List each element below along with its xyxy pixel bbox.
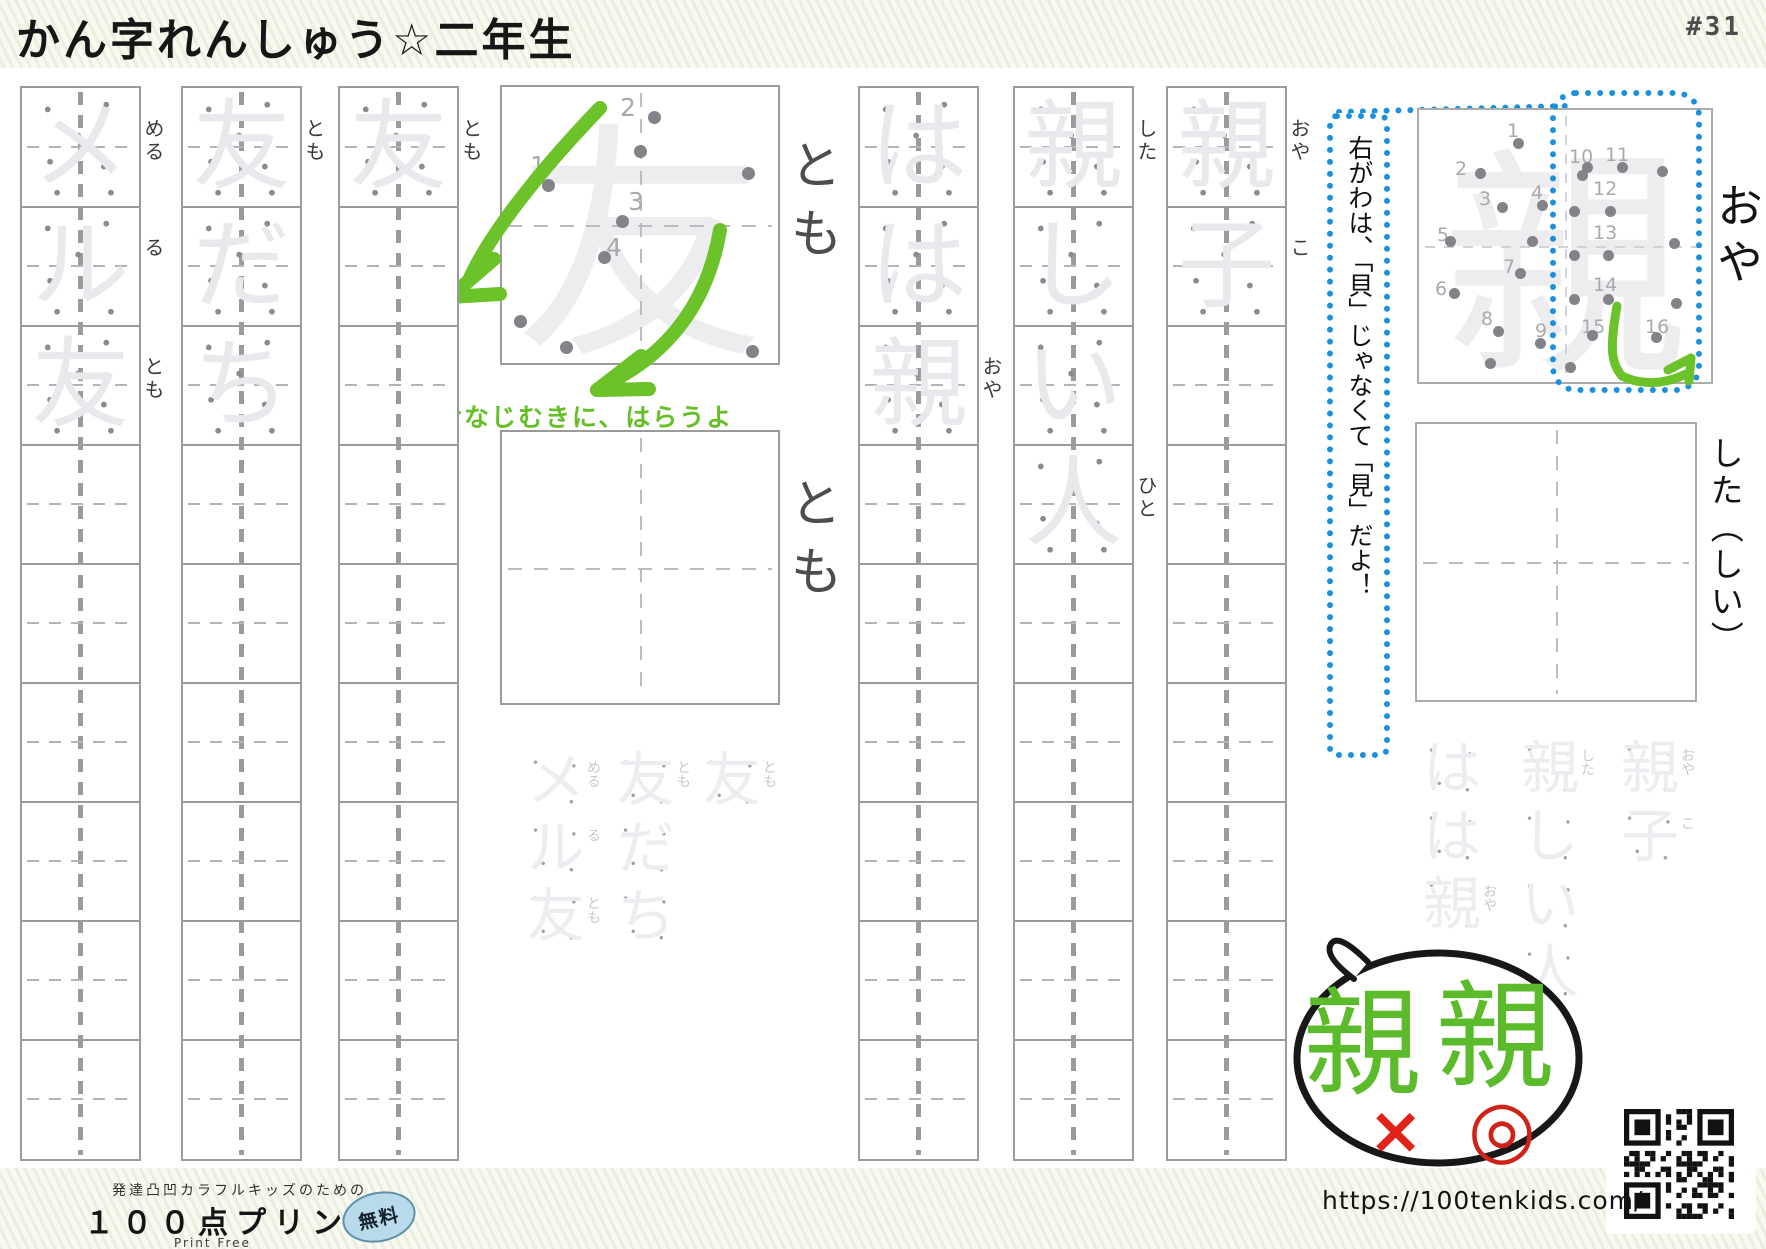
worksheet-page: #31 かん字れんしゅう☆二年生 友 1234 おなじむきに、はらうよ とも と… (0, 0, 1766, 1249)
website-url: https://100tenkids.com/ (1322, 1186, 1643, 1215)
wrong-mark: × (1368, 1098, 1423, 1164)
footer-subtitle: Print Free (174, 1236, 251, 1249)
free-badge-label: 無料 (356, 1199, 403, 1234)
handwritten-kanji-correct: 親 (1436, 978, 1554, 1096)
correct-mark: ◎ (1468, 1090, 1536, 1168)
footer-tagline: 発達凸凹カラフルキッズのための (112, 1180, 367, 1200)
handwritten-kanji-wrong: 親 (1303, 985, 1421, 1103)
